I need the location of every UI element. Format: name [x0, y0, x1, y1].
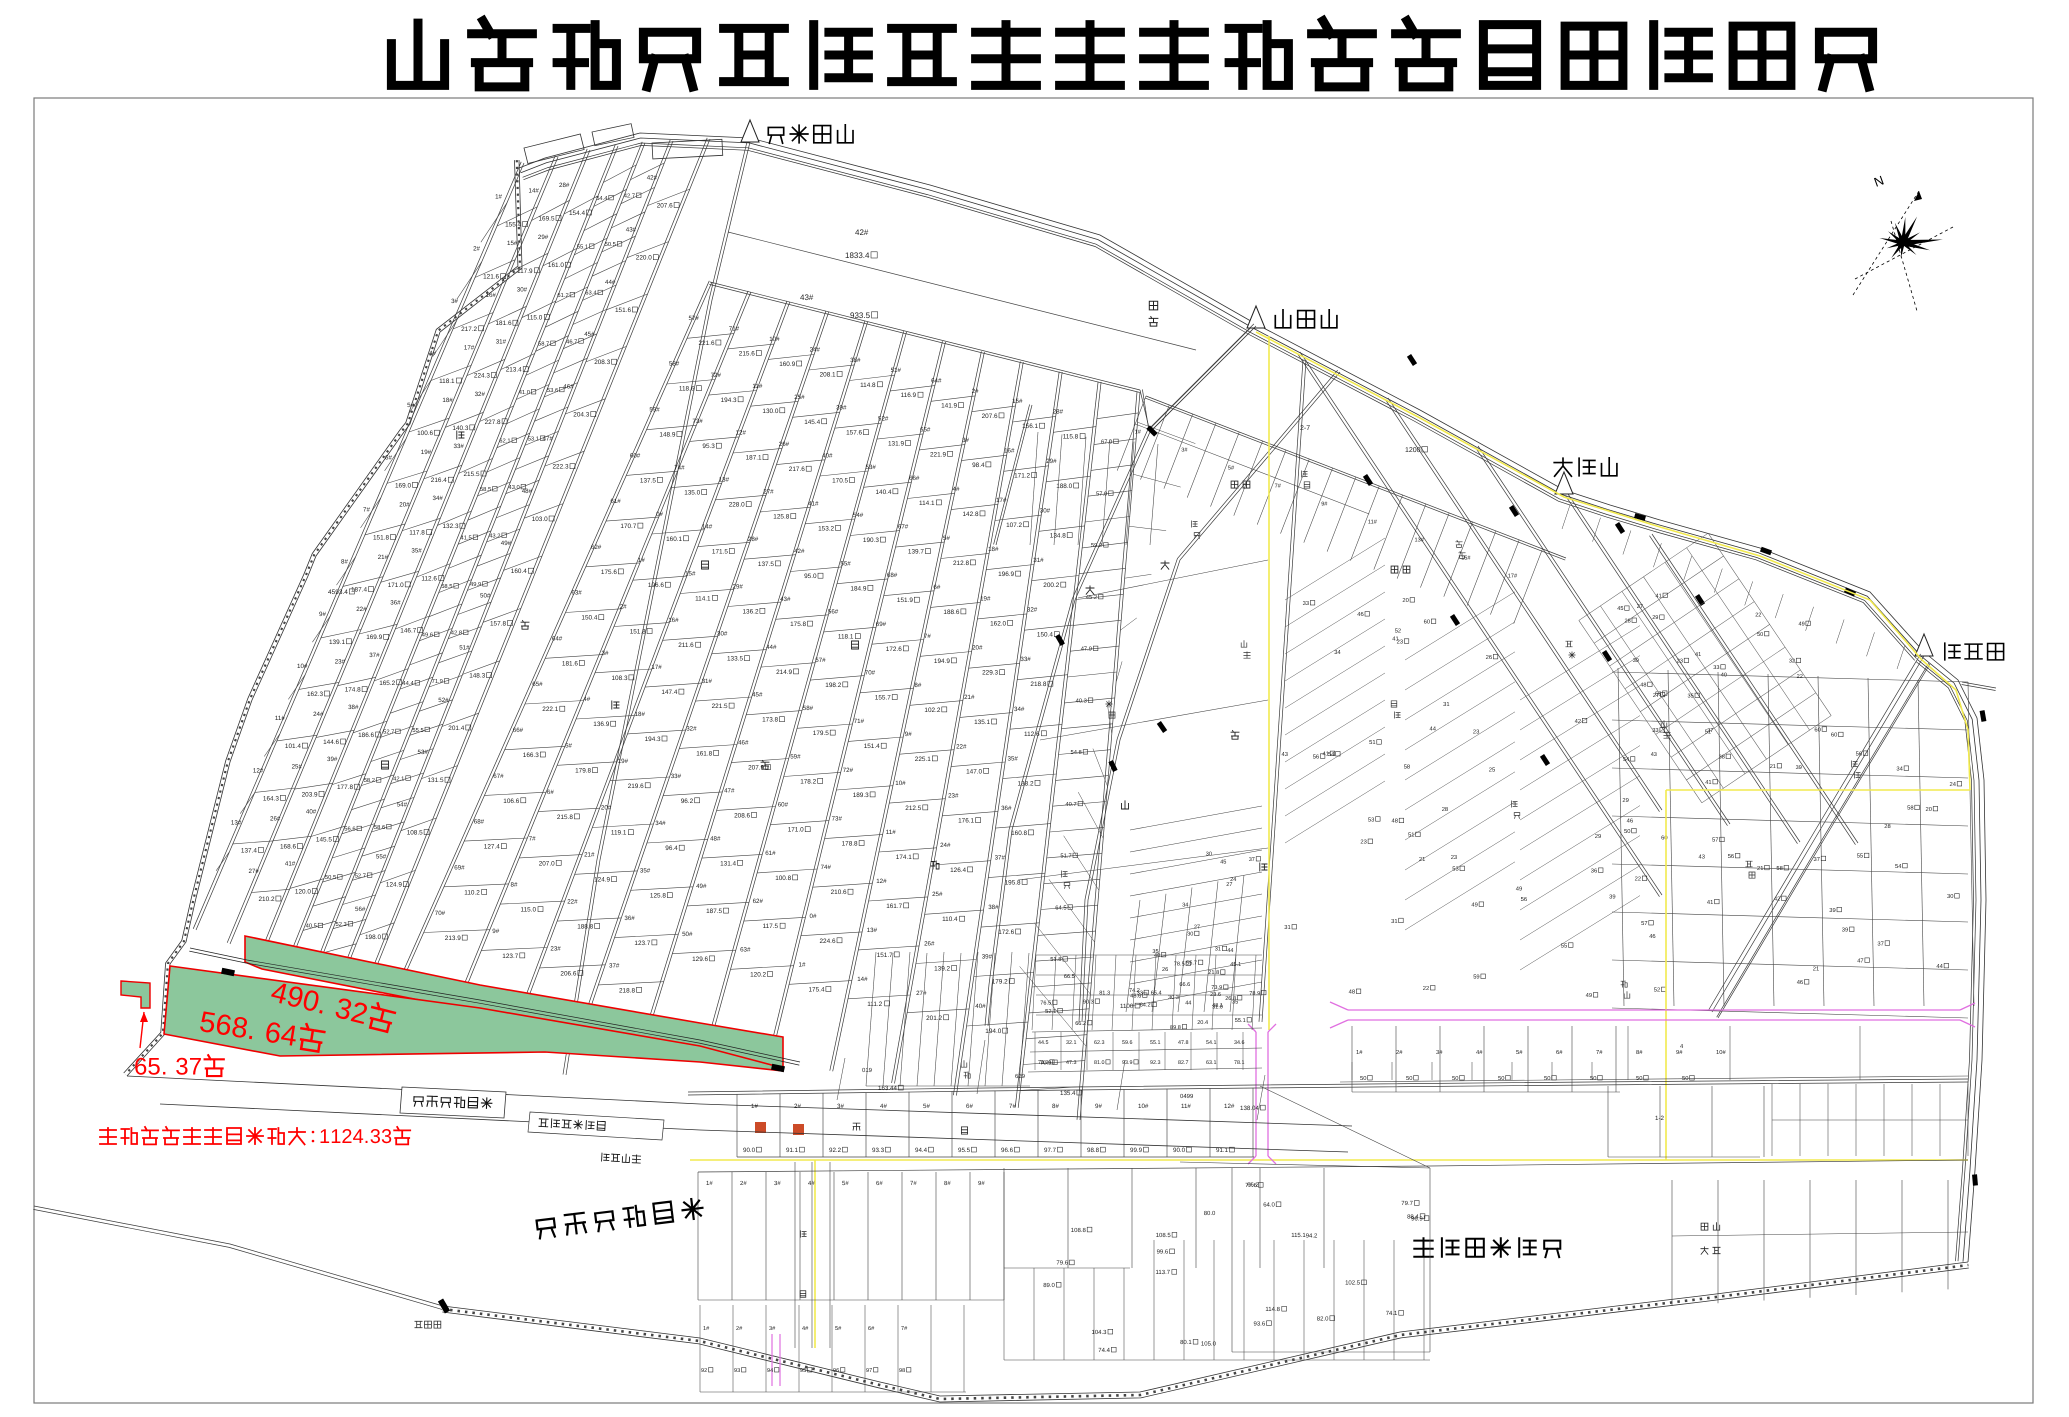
svg-text:188.0: 188.0 [1056, 483, 1072, 490]
svg-text:58.6: 58.6 [374, 824, 385, 831]
svg-text:49.9: 49.9 [470, 581, 481, 588]
svg-text:157.8: 157.8 [490, 621, 506, 628]
svg-text:116.9: 116.9 [901, 392, 917, 399]
svg-text:55: 55 [1655, 691, 1661, 697]
svg-text:108.5: 108.5 [407, 829, 423, 836]
svg-text:30: 30 [1947, 893, 1953, 900]
svg-text:6#: 6# [1556, 1049, 1563, 1056]
svg-text:23: 23 [1360, 839, 1366, 846]
svg-text:27: 27 [1637, 604, 1643, 610]
svg-text:62.3: 62.3 [1094, 1040, 1105, 1046]
svg-text:11#: 11# [1368, 519, 1378, 525]
svg-text:62#: 62# [753, 898, 764, 905]
svg-text:141.9: 141.9 [941, 403, 957, 410]
svg-text:74#: 74# [821, 864, 832, 871]
svg-text:82.7: 82.7 [1178, 1060, 1189, 1066]
svg-text:22: 22 [1423, 985, 1429, 992]
svg-text:2#: 2# [473, 246, 480, 253]
svg-text:31#: 31# [702, 678, 713, 685]
svg-text:31: 31 [1215, 947, 1221, 953]
svg-text:160.9: 160.9 [779, 361, 795, 368]
svg-text:44: 44 [1227, 948, 1233, 954]
svg-text:58: 58 [1907, 805, 1913, 812]
svg-text:66#: 66# [513, 727, 524, 734]
svg-text:71.9: 71.9 [432, 678, 443, 685]
svg-text:25#: 25# [794, 394, 805, 401]
svg-text:44.5: 44.5 [1038, 1040, 1049, 1046]
svg-text:23.6: 23.6 [1210, 992, 1221, 998]
svg-text:50: 50 [1498, 1075, 1504, 1082]
svg-text:49: 49 [1471, 901, 1477, 908]
svg-text:170.5: 170.5 [832, 478, 848, 485]
svg-text:43.2: 43.2 [489, 533, 500, 540]
svg-text:629: 629 [1015, 1073, 1026, 1080]
svg-text:26.8: 26.8 [1225, 996, 1236, 1002]
svg-text:60: 60 [1814, 726, 1820, 733]
svg-text:32#: 32# [1027, 607, 1038, 614]
svg-text:12#: 12# [736, 430, 747, 437]
svg-text:5#: 5# [923, 1103, 930, 1110]
svg-text:228.0: 228.0 [729, 502, 745, 509]
svg-text:99.6: 99.6 [1157, 1249, 1169, 1256]
svg-text:3#: 3# [1181, 447, 1188, 453]
svg-text:48#: 48# [710, 835, 721, 842]
svg-text:214.9: 214.9 [776, 669, 792, 676]
svg-text:115.0: 115.0 [521, 907, 537, 914]
svg-text:108.8: 108.8 [1071, 1227, 1087, 1234]
svg-text:10#: 10# [1716, 1049, 1726, 1056]
svg-text:165.2: 165.2 [379, 680, 395, 687]
svg-text:64.2: 64.2 [1140, 1003, 1151, 1009]
svg-text:40#: 40# [822, 453, 833, 460]
svg-text:38#: 38# [850, 357, 861, 364]
svg-text:9#: 9# [905, 731, 912, 738]
svg-text:93.6: 93.6 [1254, 1321, 1266, 1328]
svg-text:.: . [161, 1054, 168, 1081]
svg-text:54: 54 [1328, 752, 1335, 758]
svg-text:200.2: 200.2 [1043, 582, 1059, 589]
svg-text:5#: 5# [835, 1326, 842, 1332]
svg-text:78.2: 78.2 [1038, 1060, 1049, 1066]
svg-text:46#: 46# [738, 740, 749, 747]
svg-text:5#: 5# [943, 535, 950, 542]
svg-text:44#: 44# [766, 644, 777, 651]
svg-text:151.7: 151.7 [877, 952, 893, 959]
svg-text:187.5: 187.5 [706, 908, 722, 915]
svg-text:51#: 51# [459, 645, 470, 652]
svg-text:163.44: 163.44 [878, 1085, 897, 1092]
svg-text:123.7: 123.7 [634, 940, 650, 947]
svg-text:50: 50 [1544, 1075, 1550, 1082]
svg-text:155.4: 155.4 [505, 222, 521, 229]
svg-text:47.8: 47.8 [1178, 1040, 1189, 1046]
svg-text:17#: 17# [464, 345, 475, 352]
svg-text:60: 60 [1424, 619, 1430, 626]
svg-text:30: 30 [1206, 851, 1212, 857]
svg-text:36: 36 [1591, 867, 1597, 874]
svg-text:56: 56 [1728, 853, 1734, 860]
svg-text:179.5: 179.5 [813, 730, 829, 737]
svg-text:7#: 7# [924, 633, 931, 640]
svg-text:31#: 31# [1033, 557, 1044, 564]
svg-text:221.5: 221.5 [712, 703, 728, 710]
svg-text:8#: 8# [1636, 1049, 1643, 1056]
svg-text:45#: 45# [752, 692, 763, 699]
svg-text:2#: 2# [794, 1103, 801, 1110]
svg-text:175.4: 175.4 [809, 987, 825, 994]
svg-text:142.8: 142.8 [963, 511, 979, 518]
svg-text:66.5: 66.5 [1064, 974, 1075, 980]
svg-text:6#: 6# [966, 1103, 973, 1110]
svg-text:28: 28 [1884, 823, 1890, 830]
svg-text:68#: 68# [474, 819, 485, 826]
svg-text:35#: 35# [640, 868, 651, 875]
svg-text:39#: 39# [982, 954, 993, 961]
svg-text:224.6: 224.6 [820, 938, 836, 945]
svg-text:36#: 36# [390, 600, 401, 607]
svg-text:21: 21 [1757, 865, 1763, 872]
svg-text:137.5: 137.5 [758, 561, 774, 568]
svg-text:019: 019 [862, 1067, 873, 1074]
svg-text:198.0: 198.0 [365, 934, 381, 941]
svg-text:32#: 32# [475, 391, 486, 398]
svg-text:203.9: 203.9 [302, 791, 318, 798]
svg-text:52.7: 52.7 [355, 873, 366, 880]
svg-text:45: 45 [1617, 606, 1623, 612]
svg-text:56.6: 56.6 [344, 826, 355, 833]
svg-text:219.6: 219.6 [628, 783, 644, 790]
svg-text:50: 50 [1590, 1075, 1596, 1082]
svg-text:18#: 18# [442, 397, 453, 404]
svg-text:96.2: 96.2 [681, 798, 694, 805]
svg-text:51.7: 51.7 [1060, 854, 1071, 860]
svg-text:58.7: 58.7 [538, 341, 549, 348]
svg-text:61#: 61# [765, 850, 776, 857]
svg-text:16#: 16# [668, 617, 679, 624]
svg-text:50.5: 50.5 [325, 874, 336, 881]
svg-text:1100: 1100 [1120, 1003, 1134, 1010]
svg-text:46: 46 [1627, 817, 1633, 824]
svg-text:55#: 55# [840, 560, 851, 567]
svg-text:31: 31 [1391, 918, 1397, 925]
svg-text:56: 56 [1856, 750, 1862, 757]
svg-text:17#: 17# [996, 497, 1007, 504]
svg-text:222.1: 222.1 [542, 706, 558, 713]
svg-text:95.0: 95.0 [804, 573, 817, 580]
svg-text:16#: 16# [486, 292, 497, 299]
svg-text:24#: 24# [313, 711, 324, 718]
svg-text:139.7: 139.7 [908, 549, 924, 556]
svg-text:95: 95 [800, 1368, 806, 1374]
svg-text:111.2: 111.2 [867, 1001, 882, 1008]
svg-text:55.1: 55.1 [577, 244, 588, 250]
svg-text:73.9: 73.9 [1211, 985, 1222, 991]
svg-text:18#: 18# [635, 711, 646, 718]
svg-text:54.1: 54.1 [1206, 1040, 1217, 1046]
svg-text:31#: 31# [496, 339, 507, 346]
svg-text:164.3: 164.3 [263, 795, 279, 802]
svg-text:27#: 27# [763, 489, 774, 496]
svg-text:30#: 30# [517, 286, 528, 293]
svg-text:210.2: 210.2 [259, 896, 275, 903]
svg-text:4#: 4# [880, 1103, 887, 1110]
svg-text:21: 21 [1770, 764, 1776, 770]
svg-text:21.8: 21.8 [1208, 970, 1219, 976]
svg-text:178.8: 178.8 [842, 841, 858, 848]
svg-text:169.0: 169.0 [395, 482, 411, 489]
svg-text:82.0: 82.0 [1317, 1316, 1329, 1323]
svg-text:76.5: 76.5 [1040, 1000, 1051, 1006]
svg-text:145.4: 145.4 [804, 419, 820, 426]
svg-text:95.3: 95.3 [702, 443, 715, 450]
svg-text:41: 41 [1695, 652, 1701, 658]
svg-text:1#: 1# [706, 1180, 713, 1187]
svg-text:34#: 34# [433, 495, 444, 502]
svg-text:7#: 7# [1275, 483, 1282, 489]
svg-text:222.3: 222.3 [553, 464, 569, 471]
svg-text:37: 37 [1877, 940, 1883, 947]
svg-text:19#: 19# [618, 758, 629, 765]
svg-text:29: 29 [1652, 615, 1658, 621]
svg-text:6#: 6# [868, 1326, 875, 1332]
svg-text:96: 96 [833, 1368, 839, 1374]
svg-text:172.6: 172.6 [886, 646, 902, 653]
svg-text:20: 20 [1402, 597, 1408, 604]
svg-text:81.0: 81.0 [1094, 1060, 1105, 1066]
svg-text:7: 7 [189, 1054, 202, 1081]
svg-text:20#: 20# [972, 645, 983, 652]
svg-text:15#: 15# [507, 240, 518, 247]
svg-text:198.2: 198.2 [825, 682, 841, 689]
svg-text:210.6: 210.6 [831, 889, 847, 896]
svg-text:41#: 41# [285, 861, 296, 868]
svg-text:125.8: 125.8 [650, 893, 666, 900]
svg-text:8#: 8# [341, 559, 348, 566]
svg-text:29: 29 [1622, 797, 1628, 804]
svg-text:138.2: 138.2 [1018, 780, 1034, 787]
svg-text:63.1: 63.1 [1206, 1060, 1217, 1066]
svg-text:215.6: 215.6 [739, 351, 755, 358]
svg-text:25#: 25# [932, 891, 943, 898]
svg-text:23#: 23# [335, 659, 346, 666]
svg-text:20.4: 20.4 [1197, 1020, 1208, 1026]
svg-text:9#: 9# [1321, 501, 1328, 507]
svg-text:33#: 33# [1020, 656, 1031, 663]
svg-text:62.1: 62.1 [499, 438, 510, 445]
svg-text:92.2: 92.2 [829, 1147, 842, 1154]
svg-text:50.5: 50.5 [605, 241, 616, 248]
svg-text:3#: 3# [451, 298, 458, 305]
svg-text:1#: 1# [495, 194, 502, 201]
svg-text:93: 93 [734, 1368, 740, 1374]
svg-text:207.6: 207.6 [657, 203, 673, 210]
svg-text:92: 92 [701, 1368, 707, 1374]
svg-text:79.6: 79.6 [1056, 1260, 1068, 1267]
svg-text:53.6: 53.6 [547, 387, 558, 394]
svg-text:42: 42 [1575, 718, 1581, 725]
svg-text:170.7: 170.7 [620, 523, 636, 530]
svg-text:42#: 42# [855, 228, 869, 237]
svg-text:107.2: 107.2 [1006, 522, 1022, 529]
svg-text:5#: 5# [1228, 465, 1235, 471]
svg-text:11#: 11# [752, 383, 762, 390]
svg-text:50: 50 [1624, 828, 1630, 835]
svg-text:212.5: 212.5 [905, 805, 921, 812]
svg-text:35#: 35# [411, 547, 422, 554]
svg-text:64.5: 64.5 [1055, 904, 1066, 911]
svg-text:41#: 41# [808, 500, 819, 507]
svg-text:154.4: 154.4 [569, 210, 585, 217]
svg-text:1-2: 1-2 [1655, 1115, 1665, 1122]
svg-text:30#: 30# [1040, 508, 1051, 515]
svg-text:146.7: 146.7 [400, 628, 416, 635]
svg-text:106.6: 106.6 [503, 798, 519, 805]
svg-text:11#: 11# [886, 829, 896, 836]
svg-text:78.9: 78.9 [1249, 991, 1260, 997]
svg-text:41.0: 41.0 [519, 389, 530, 396]
svg-text:110.4: 110.4 [942, 916, 958, 923]
svg-text:40.3: 40.3 [1076, 697, 1087, 704]
svg-text:23: 23 [1677, 659, 1683, 665]
svg-text:64#: 64# [931, 378, 942, 385]
svg-text:10#: 10# [1138, 1103, 1149, 1110]
svg-text:38#: 38# [348, 704, 359, 711]
svg-text:117.8: 117.8 [409, 530, 425, 537]
svg-text:177.8: 177.8 [337, 784, 353, 791]
svg-text:42#: 42# [647, 175, 658, 182]
svg-text:35: 35 [1152, 949, 1158, 955]
svg-text:161.0: 161.0 [548, 262, 564, 269]
svg-text:45: 45 [1220, 860, 1226, 866]
svg-text:13#: 13# [719, 477, 730, 484]
svg-text:131.9: 131.9 [888, 441, 904, 448]
svg-text:54.4: 54.4 [596, 196, 608, 202]
svg-text:169.9: 169.9 [366, 634, 382, 641]
svg-text:124.9: 124.9 [386, 882, 402, 889]
svg-text:53: 53 [1368, 816, 1374, 823]
svg-text:4#: 4# [429, 350, 436, 357]
svg-text:14#: 14# [702, 524, 713, 531]
svg-text:20#: 20# [399, 502, 410, 509]
svg-text:41: 41 [1323, 752, 1329, 758]
svg-text:12#: 12# [876, 878, 887, 885]
svg-text:60: 60 [1831, 732, 1837, 739]
svg-text:23#: 23# [948, 793, 959, 800]
svg-text:179.2: 179.2 [992, 979, 1008, 986]
svg-text:66#: 66# [909, 475, 920, 482]
svg-text:105.0: 105.0 [1201, 1340, 1217, 1347]
svg-text:33: 33 [1713, 665, 1719, 671]
svg-text:54: 54 [1623, 757, 1629, 763]
svg-text:8#: 8# [1052, 1103, 1059, 1110]
svg-text:10#: 10# [297, 663, 308, 670]
svg-text:92.3: 92.3 [1150, 1060, 1161, 1066]
svg-text:67#: 67# [898, 524, 909, 531]
svg-text:80.0: 80.0 [1204, 1210, 1216, 1217]
svg-text:24: 24 [1230, 877, 1236, 883]
svg-text:160.1: 160.1 [666, 536, 682, 543]
svg-text:30: 30 [1187, 932, 1193, 938]
svg-text:206.6: 206.6 [560, 970, 576, 977]
svg-text:34#: 34# [1014, 706, 1025, 713]
svg-text:1#: 1# [751, 1103, 758, 1110]
svg-text:201.4: 201.4 [448, 725, 464, 732]
svg-text:43#: 43# [800, 293, 814, 302]
svg-text:3#: 3# [774, 1180, 781, 1187]
svg-text:19#: 19# [980, 595, 991, 602]
svg-text:44: 44 [1185, 1000, 1191, 1006]
svg-text:47#: 47# [724, 787, 735, 794]
svg-text:148.9: 148.9 [659, 432, 675, 439]
svg-text:10#: 10# [769, 336, 780, 343]
svg-text:196.9: 196.9 [998, 571, 1014, 578]
svg-text:2#: 2# [736, 1326, 743, 1332]
svg-text:74.1: 74.1 [1386, 1310, 1398, 1317]
svg-text:13#: 13# [231, 819, 242, 826]
svg-text:136.2: 136.2 [743, 608, 759, 615]
svg-text:151.4: 151.4 [864, 743, 880, 750]
svg-text:4#: 4# [583, 696, 590, 703]
svg-text:57#: 57# [815, 657, 826, 664]
svg-text:52: 52 [1654, 987, 1660, 994]
svg-text:24#: 24# [940, 842, 951, 849]
svg-text:45.1: 45.1 [1230, 962, 1241, 968]
svg-text:114.1: 114.1 [695, 595, 711, 602]
svg-text:11#: 11# [275, 715, 285, 722]
svg-text:39: 39 [1829, 907, 1835, 914]
svg-text:73#: 73# [692, 418, 703, 425]
svg-text:27: 27 [1194, 924, 1200, 930]
svg-text:49#: 49# [696, 883, 707, 890]
svg-text:59#: 59# [790, 753, 801, 760]
svg-text:5: 5 [147, 1054, 160, 1081]
svg-text:7#: 7# [901, 1326, 908, 1332]
svg-text:59: 59 [1473, 974, 1479, 981]
svg-text:207.6: 207.6 [982, 413, 998, 420]
svg-text:55: 55 [1561, 943, 1567, 949]
svg-text:30.3: 30.3 [1168, 995, 1179, 1001]
svg-text:37: 37 [1814, 856, 1820, 863]
svg-text:15#: 15# [685, 570, 696, 577]
svg-text:135.0: 135.0 [684, 490, 700, 497]
svg-text:171.2: 171.2 [1014, 473, 1030, 480]
svg-text:5#: 5# [407, 402, 414, 409]
svg-text:50: 50 [1360, 1075, 1366, 1082]
svg-text:40#: 40# [975, 1003, 986, 1010]
svg-text:52#: 52# [438, 697, 449, 704]
svg-text:34.6: 34.6 [1234, 1040, 1245, 1046]
svg-text:99.9: 99.9 [1130, 1147, 1143, 1154]
svg-text:61.2: 61.2 [557, 292, 568, 299]
svg-text:194.0: 194.0 [985, 1028, 1001, 1035]
svg-text:21: 21 [1813, 965, 1819, 972]
svg-text:131.5: 131.5 [428, 777, 444, 784]
svg-text:40.7: 40.7 [1065, 801, 1076, 808]
svg-text:211.6: 211.6 [678, 642, 694, 649]
svg-text:169.5: 169.5 [539, 216, 555, 223]
svg-text:147.0: 147.0 [966, 768, 982, 775]
svg-text:7#: 7# [910, 1180, 917, 1187]
svg-text:3: 3 [175, 1054, 188, 1081]
svg-text:43#: 43# [780, 596, 791, 603]
svg-text:6#: 6# [876, 1180, 883, 1187]
svg-text:161.7: 161.7 [886, 903, 902, 910]
svg-text:112.6: 112.6 [421, 575, 437, 582]
svg-text:19#: 19# [421, 449, 432, 456]
svg-text:2#: 2# [740, 1180, 747, 1187]
svg-text:71#: 71# [729, 326, 740, 333]
svg-text:1200: 1200 [1405, 447, 1421, 454]
